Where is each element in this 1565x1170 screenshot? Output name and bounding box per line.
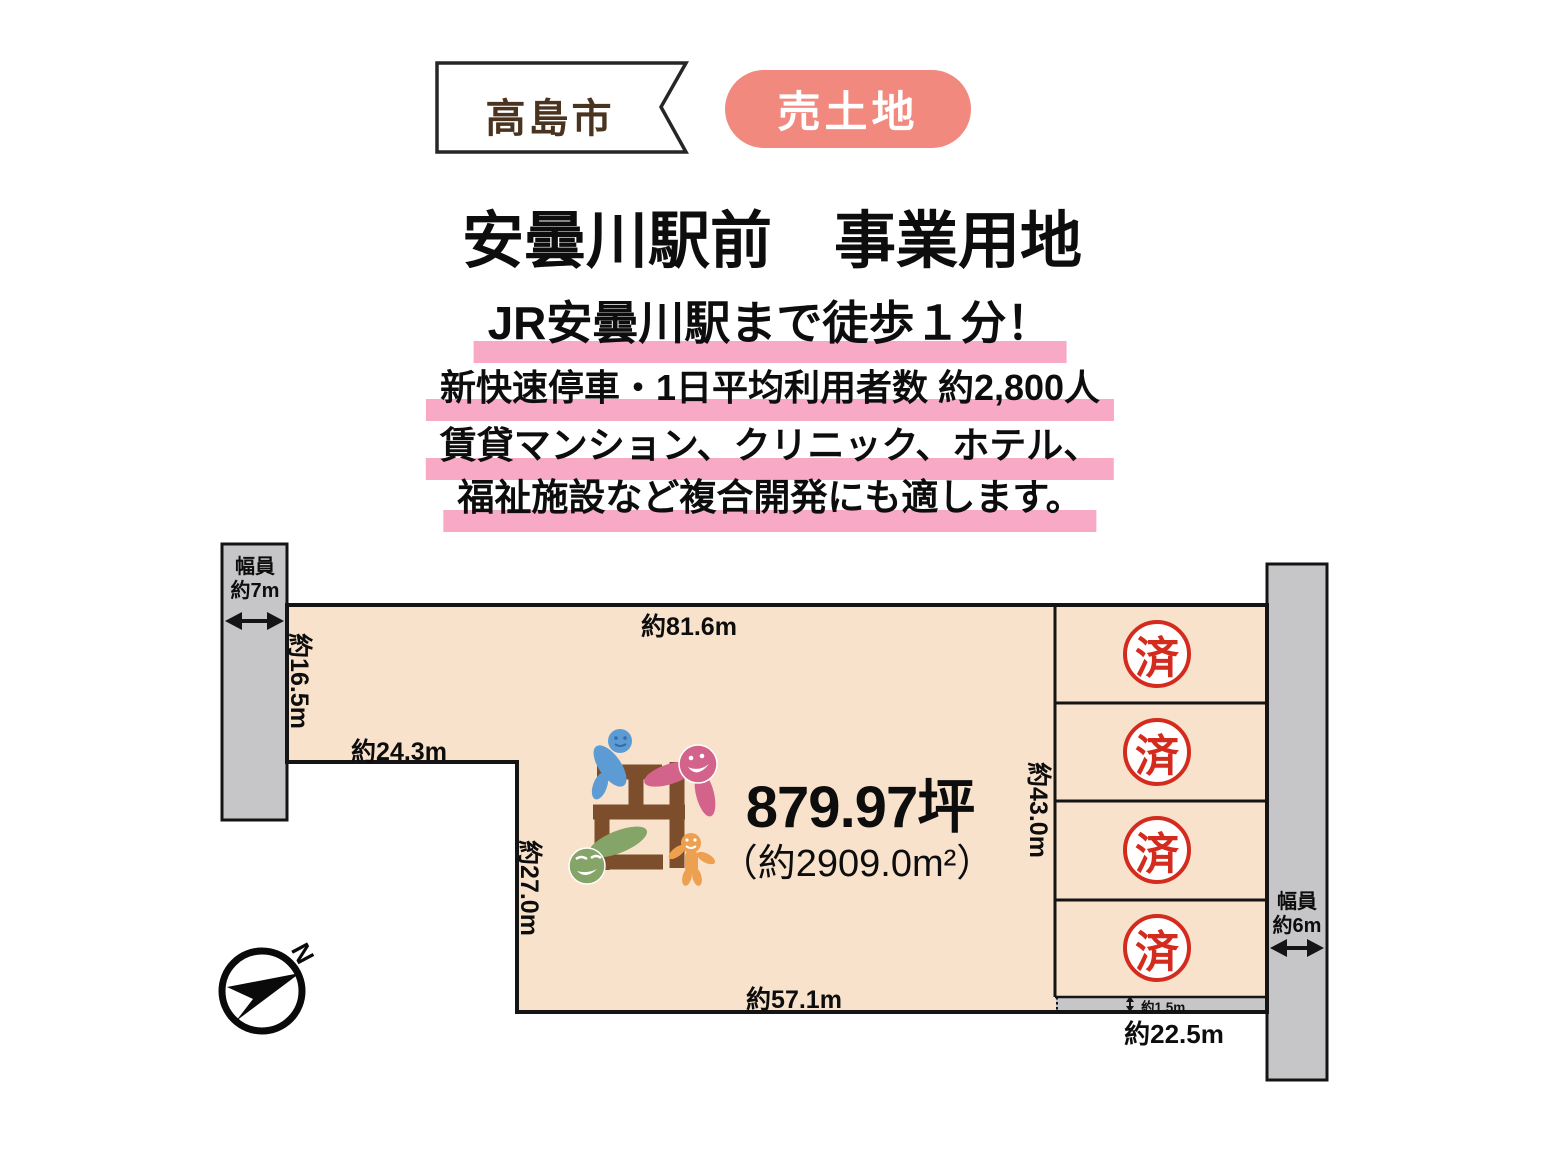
right-road-width-label: 幅員 約6m — [1273, 891, 1322, 938]
dimension-left-step: 約24.3m — [351, 732, 447, 768]
dimension-left-upper: 約16.5m — [283, 633, 319, 729]
sale-type-badge: 売土地 — [725, 70, 971, 148]
sale-type-label: 売土地 — [778, 78, 919, 140]
land-sale-flyer: 高島市 売土地 安曇川駅前 事業用地 JR安曇川駅まで徒歩１分！ 新快速停車・1… — [0, 0, 1565, 1170]
sold-stamp-4: 済 — [1123, 914, 1191, 982]
dimension-top: 約81.6m — [641, 607, 737, 643]
left-road-width-line2: 約7m — [231, 580, 280, 604]
dimension-bottom-right: 約22.5m — [1124, 1014, 1224, 1051]
area-square-meters: （約2909.0m²） — [720, 832, 995, 887]
right-road-width-line1: 幅員 — [1273, 891, 1322, 915]
city-badge-label: 高島市 — [486, 86, 615, 144]
left-road-width-line1: 幅員 — [231, 556, 280, 580]
catchphrase-access: JR安曇川駅まで徒歩１分！ — [488, 296, 1053, 351]
dimension-bottom: 約57.1m — [746, 980, 842, 1016]
right-road — [1267, 564, 1327, 1080]
dimension-right-inner: 約43.0m — [1022, 762, 1058, 858]
catchphrase-station-users: 新快速停車・1日平均利用者数 約2,800人 — [440, 366, 1100, 409]
left-road-width-label: 幅員 約7m — [231, 556, 280, 603]
catchphrase-usage-2: 福祉施設など複合開発にも適します。 — [457, 476, 1082, 520]
dimension-alley: 約1.5m — [1141, 996, 1185, 1016]
page-title: 安曇川駅前 事業用地 — [462, 190, 1082, 280]
dimension-left-lower: 約27.0m — [513, 840, 549, 936]
sold-stamp-3: 済 — [1123, 816, 1191, 884]
sold-stamp-2: 済 — [1123, 718, 1191, 786]
right-road-width-line2: 約6m — [1273, 915, 1322, 939]
sold-stamp-1: 済 — [1123, 620, 1191, 688]
catchphrase-usage-1: 賃貸マンション、クリニック、ホテル、 — [440, 424, 1100, 468]
